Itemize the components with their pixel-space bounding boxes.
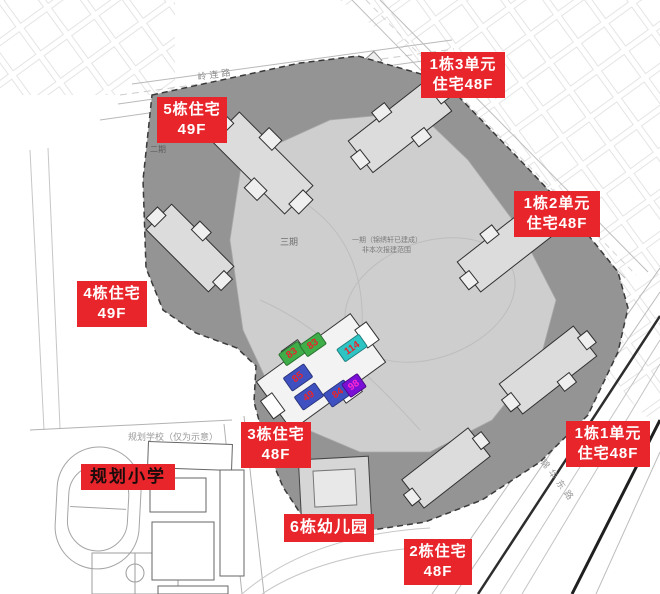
label-building-1-unit-2: 1栋2单元 住宅48F	[514, 191, 600, 237]
label-building-5: 5栋住宅 49F	[157, 97, 227, 143]
site-plan-image: 岭连路 锦华东路	[0, 0, 660, 594]
unit-area-value: 83	[284, 346, 299, 361]
label-kindergarten: 6栋幼儿园	[284, 514, 374, 542]
label-line: 6栋幼儿园	[290, 517, 368, 538]
label-line: 住宅48F	[527, 214, 588, 234]
road-west	[30, 148, 60, 430]
label-line: 规划小学	[90, 466, 166, 488]
label-line: 4栋住宅	[83, 284, 140, 304]
label-building-1-unit-3: 1栋3单元 住宅48F	[421, 52, 505, 98]
label-building-1-unit-1: 1栋1单元 住宅48F	[566, 421, 650, 467]
label-planned-primary-school: 规划小学	[81, 464, 175, 490]
label-line: 5栋住宅	[163, 100, 220, 120]
label-line: 1栋3单元	[430, 55, 497, 75]
label-line: 49F	[178, 120, 207, 140]
unit-area-value: 85	[290, 370, 305, 385]
label-line: 48F	[424, 562, 453, 582]
label-line: 2栋住宅	[409, 542, 466, 562]
unit-area-value: 98	[346, 378, 361, 393]
unit-area-value: 83	[305, 337, 320, 352]
unit-area-value: 49	[301, 389, 316, 404]
label-building-2: 2栋住宅 48F	[404, 539, 472, 585]
note-phase2: 二期	[150, 145, 166, 154]
label-line: 1栋1单元	[575, 424, 642, 444]
label-line: 48F	[262, 445, 291, 465]
label-line: 住宅48F	[578, 444, 639, 464]
label-line: 3栋住宅	[247, 425, 304, 445]
label-line: 1栋2单元	[524, 194, 591, 214]
label-line: 住宅48F	[433, 75, 494, 95]
note-phase1-line1: 一期（锦绣轩已建成）	[352, 235, 422, 244]
school-note: 规划学校（仅为示意）	[128, 431, 218, 442]
label-building-4: 4栋住宅 49F	[77, 281, 147, 327]
note-phase1-line2: 非本次报建范围	[362, 245, 411, 254]
note-phase3: 三期	[280, 237, 298, 247]
label-line: 49F	[98, 304, 127, 324]
label-building-3: 3栋住宅 48F	[241, 422, 311, 468]
city-blocks-northwest	[0, 0, 175, 95]
